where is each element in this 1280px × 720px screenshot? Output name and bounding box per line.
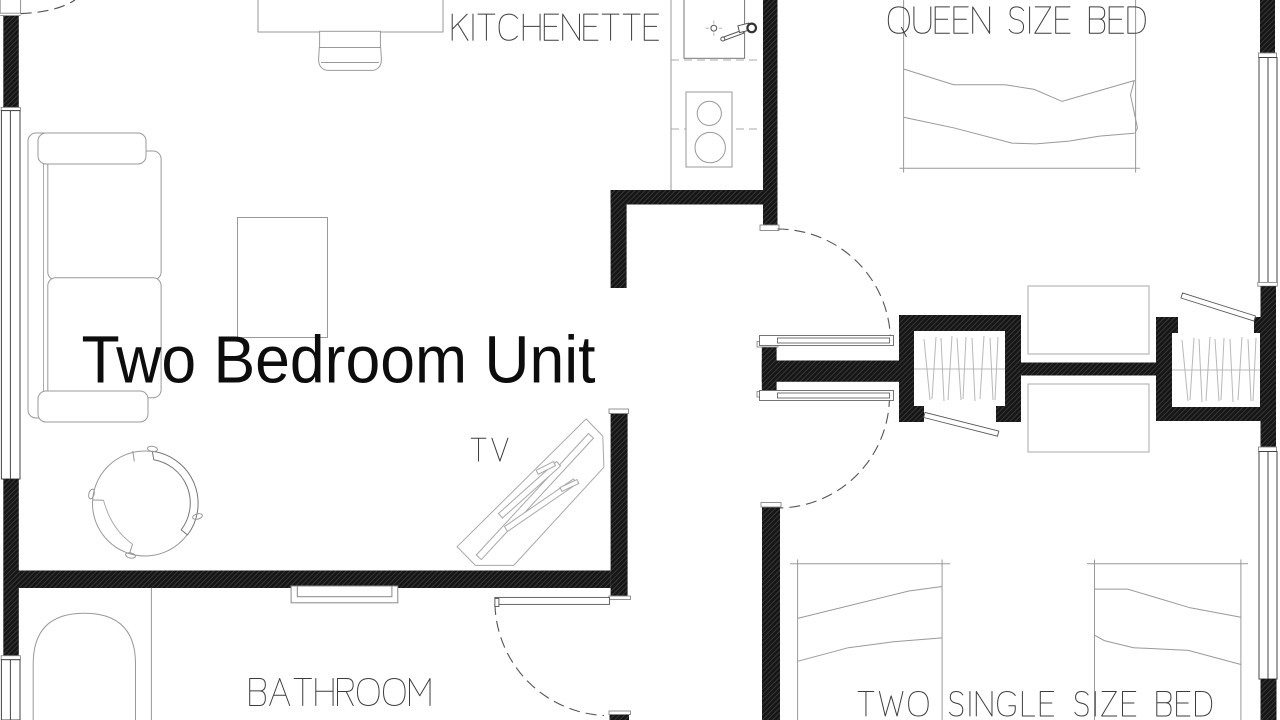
svg-text:Two Bedroom Unit: Two Bedroom Unit	[82, 323, 596, 398]
